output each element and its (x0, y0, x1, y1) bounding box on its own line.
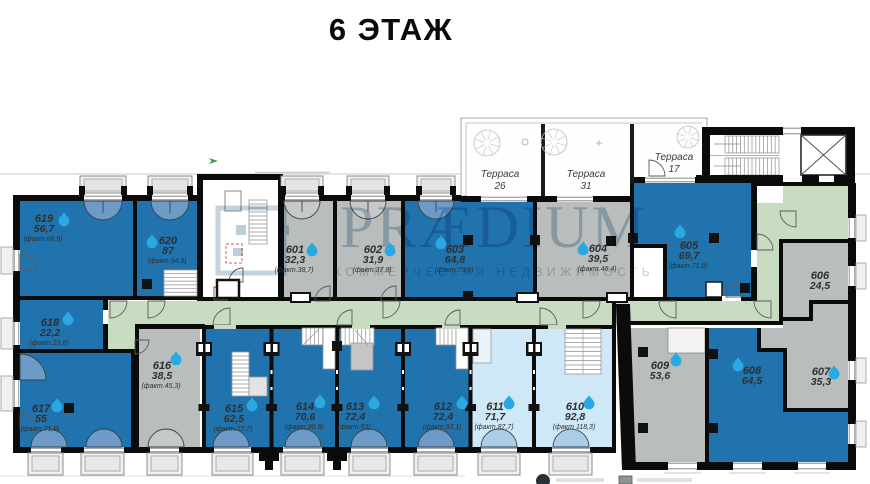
svg-text:(факт.92,1): (факт.92,1) (422, 424, 461, 431)
svg-text:38,5: 38,5 (152, 370, 173, 382)
svg-text:Терраса: Терраса (481, 169, 520, 180)
svg-text:(факт.46,4): (факт.46,4) (577, 266, 616, 273)
svg-text:(факт.38,7): (факт.38,7) (274, 267, 313, 274)
svg-text:87: 87 (162, 245, 175, 257)
svg-text:72,4: 72,4 (433, 411, 454, 423)
svg-text:(факт.87,7): (факт.87,7) (474, 424, 513, 431)
svg-text:17: 17 (668, 164, 680, 175)
svg-text:26: 26 (493, 181, 506, 192)
svg-text:Терраса: Терраса (655, 152, 694, 163)
svg-text:Терраса: Терраса (567, 169, 606, 180)
svg-text:71,7: 71,7 (485, 411, 507, 423)
svg-text:(факт.71,9): (факт.71,9) (668, 263, 707, 270)
svg-text:(факт.23,6): (факт.23,6) (29, 340, 68, 347)
svg-text:70,6: 70,6 (295, 411, 316, 423)
svg-text:35,3: 35,3 (811, 376, 832, 388)
svg-text:64,8: 64,8 (445, 254, 466, 266)
svg-text:(факт.94,9): (факт.94,9) (147, 258, 186, 265)
svg-text:22,2: 22,2 (39, 327, 61, 339)
svg-text:(факт.93): (факт.93) (337, 424, 370, 431)
svg-text:(факт.66,9): (факт.66,9) (23, 236, 62, 243)
svg-text:32,3: 32,3 (285, 254, 306, 266)
svg-text:(факт.79,9): (факт.79,9) (434, 267, 473, 274)
svg-text:31: 31 (580, 181, 591, 192)
svg-text:(факт.71,8): (факт.71,8) (20, 426, 59, 433)
svg-text:56,7: 56,7 (34, 223, 56, 235)
svg-text:62,5: 62,5 (224, 413, 245, 425)
svg-text:64,5: 64,5 (742, 375, 763, 387)
svg-text:55: 55 (35, 413, 47, 425)
svg-text:72,4: 72,4 (345, 411, 366, 423)
svg-text:(факт 118,3): (факт 118,3) (553, 424, 596, 431)
svg-text:24,5: 24,5 (809, 280, 831, 292)
svg-text:(факт.45,3): (факт.45,3) (141, 383, 180, 390)
svg-text:6 ЭТАЖ: 6 ЭТАЖ (329, 12, 453, 47)
svg-text:31,9: 31,9 (363, 254, 384, 266)
svg-text:(факт.37,8): (факт.37,8) (352, 267, 391, 274)
svg-text:(факт.90,9): (факт.90,9) (284, 424, 323, 431)
svg-text:(факт.77,7): (факт.77,7) (213, 426, 252, 433)
svg-text:53,6: 53,6 (650, 370, 671, 382)
svg-text:39,5: 39,5 (588, 253, 609, 265)
svg-text:69,7: 69,7 (679, 250, 701, 262)
svg-text:92,8: 92,8 (565, 411, 586, 423)
